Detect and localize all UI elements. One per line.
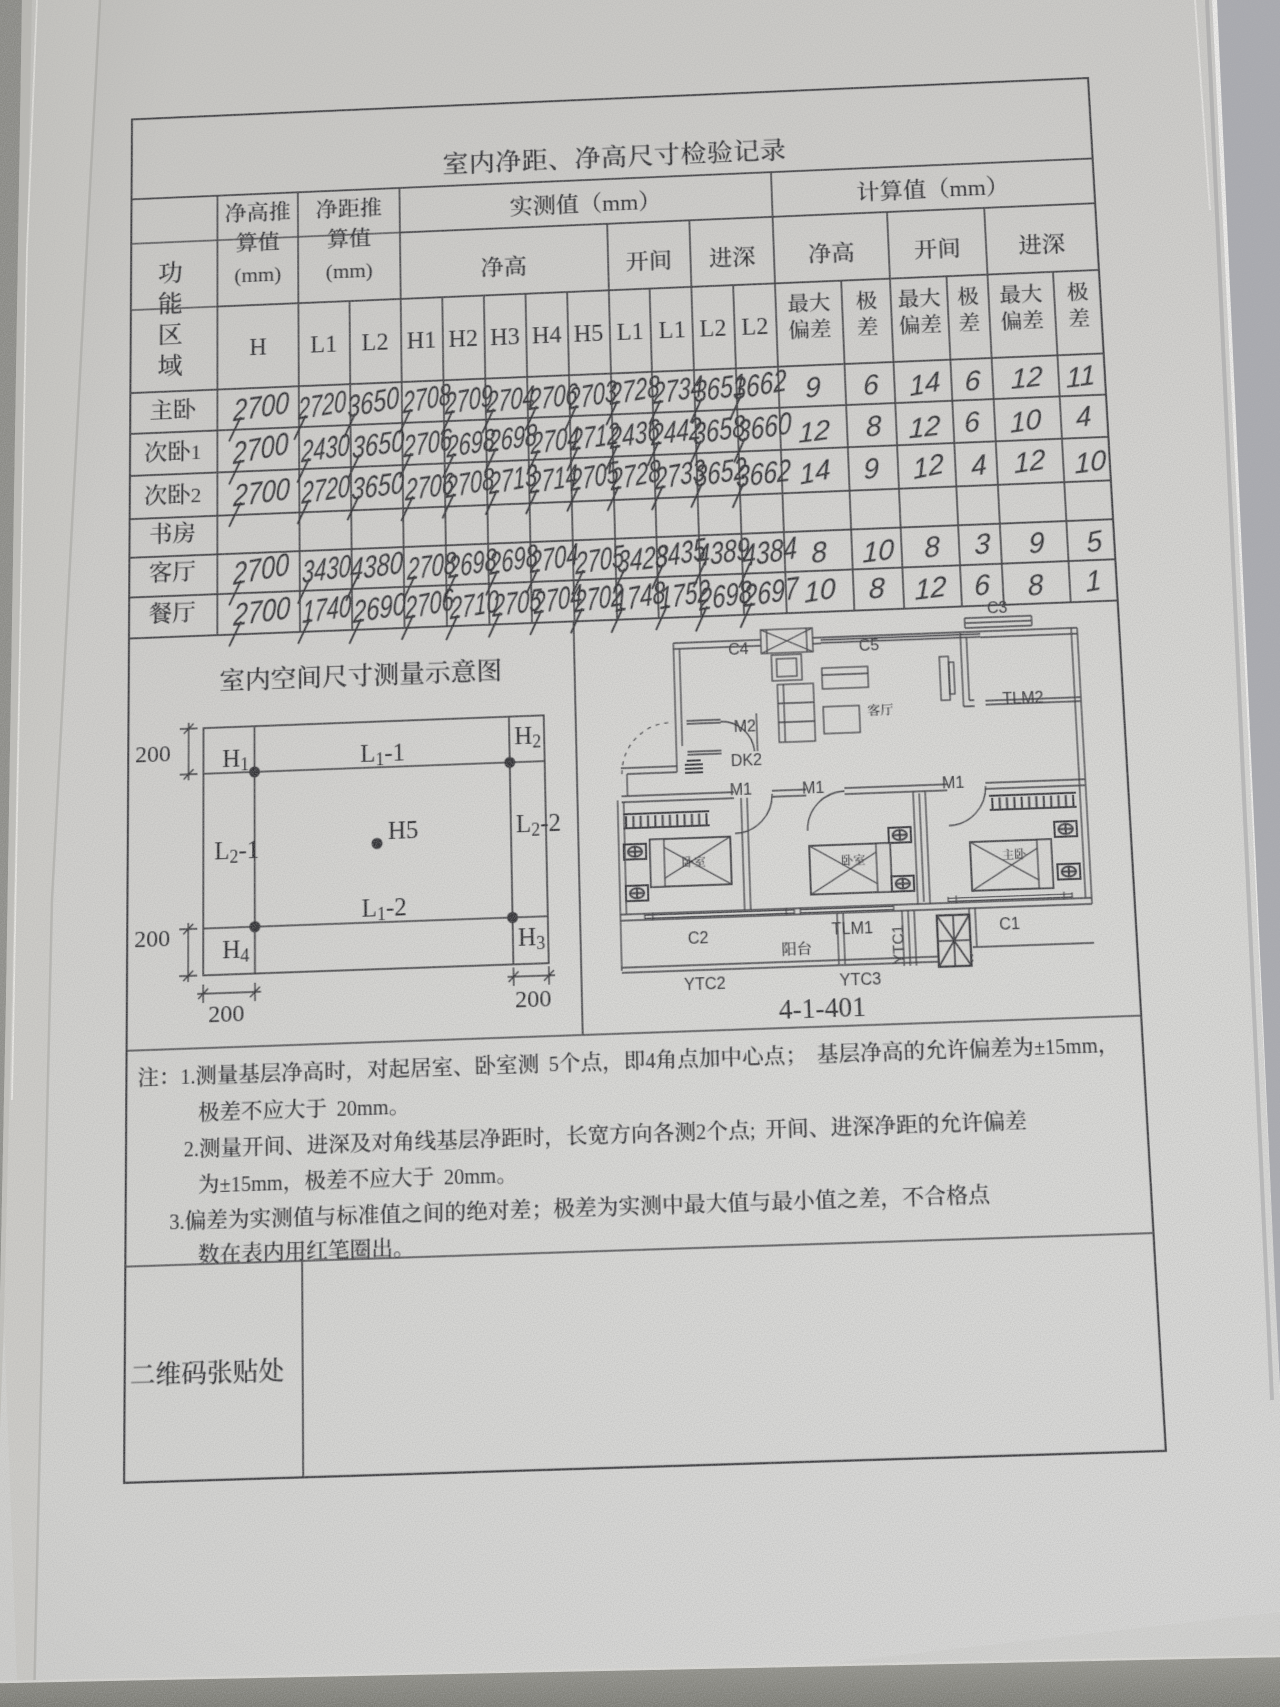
svg-text:YTC1: YTC1 bbox=[888, 924, 907, 964]
svg-text:L1-1: L1-1 bbox=[360, 739, 405, 770]
svg-text:DK2: DK2 bbox=[731, 752, 763, 770]
svg-text:8: 8 bbox=[810, 534, 828, 570]
svg-text:±15mm: ±15mm bbox=[219, 1171, 283, 1197]
svg-text:10: 10 bbox=[1010, 402, 1042, 439]
svg-text:12: 12 bbox=[911, 447, 945, 486]
svg-text:2: 2 bbox=[191, 484, 202, 507]
svg-text:H1: H1 bbox=[407, 327, 437, 355]
svg-text:12: 12 bbox=[908, 409, 940, 445]
svg-text:8: 8 bbox=[923, 529, 941, 565]
svg-text:5: 5 bbox=[1085, 523, 1104, 559]
svg-text:C2: C2 bbox=[688, 930, 709, 948]
svg-text:200: 200 bbox=[135, 740, 171, 768]
svg-text:200: 200 bbox=[515, 984, 552, 1013]
svg-text:C4: C4 bbox=[728, 641, 749, 659]
svg-text:4-1-401: 4-1-401 bbox=[778, 992, 866, 1025]
svg-text:H3: H3 bbox=[518, 923, 546, 954]
svg-text:6: 6 bbox=[974, 567, 992, 602]
svg-text:M1: M1 bbox=[802, 780, 825, 798]
svg-text:4380: 4380 bbox=[350, 546, 404, 588]
svg-text:10: 10 bbox=[862, 532, 894, 569]
svg-text:4: 4 bbox=[1075, 399, 1092, 434]
svg-text:(mm): (mm) bbox=[234, 263, 281, 287]
svg-text:L1-2: L1-2 bbox=[361, 893, 407, 925]
svg-text:1: 1 bbox=[191, 441, 202, 464]
svg-text:3650: 3650 bbox=[347, 381, 400, 425]
svg-text:;: ; bbox=[749, 1120, 755, 1144]
svg-text:TLM1: TLM1 bbox=[831, 920, 873, 939]
svg-text:200: 200 bbox=[134, 924, 170, 953]
svg-text:L1: L1 bbox=[617, 319, 645, 347]
svg-text:4: 4 bbox=[970, 447, 988, 482]
svg-text:3660: 3660 bbox=[737, 406, 792, 449]
svg-text:M2: M2 bbox=[733, 718, 756, 736]
svg-text:H2: H2 bbox=[448, 325, 478, 353]
svg-text:2.: 2. bbox=[184, 1138, 199, 1162]
svg-text:C5: C5 bbox=[858, 637, 879, 655]
svg-text:2700: 2700 bbox=[232, 386, 290, 428]
svg-text:L2-2: L2-2 bbox=[516, 809, 562, 841]
svg-text:200: 200 bbox=[208, 999, 244, 1028]
svg-text:9: 9 bbox=[863, 451, 880, 486]
svg-text:9: 9 bbox=[1028, 525, 1045, 560]
svg-text:2720: 2720 bbox=[297, 385, 346, 427]
svg-text:12: 12 bbox=[1013, 442, 1045, 479]
svg-text:C1: C1 bbox=[999, 916, 1021, 934]
svg-text:20mm: 20mm bbox=[444, 1164, 497, 1189]
svg-text:9: 9 bbox=[805, 370, 822, 405]
svg-text:mm: mm bbox=[949, 175, 986, 202]
svg-text:11: 11 bbox=[1066, 358, 1096, 394]
svg-text:H4: H4 bbox=[532, 322, 563, 350]
svg-text:8: 8 bbox=[865, 408, 882, 443]
svg-text:10: 10 bbox=[804, 571, 836, 609]
svg-text:2700: 2700 bbox=[232, 591, 291, 633]
svg-text:mm: mm bbox=[602, 189, 639, 216]
svg-text:L1: L1 bbox=[310, 331, 337, 359]
svg-text:L2: L2 bbox=[741, 313, 769, 341]
svg-text:4: 4 bbox=[645, 1050, 656, 1074]
svg-text:2430: 2430 bbox=[300, 428, 350, 470]
svg-text:8: 8 bbox=[869, 571, 885, 606]
svg-text:TLM2: TLM2 bbox=[1002, 690, 1044, 709]
svg-text:H5: H5 bbox=[573, 320, 603, 348]
svg-text:2690: 2690 bbox=[352, 587, 406, 631]
svg-text:YTC3: YTC3 bbox=[839, 971, 881, 990]
svg-text:2: 2 bbox=[696, 1121, 707, 1145]
svg-text:3: 3 bbox=[974, 526, 990, 561]
svg-text:12: 12 bbox=[798, 413, 830, 449]
svg-text:L1: L1 bbox=[658, 317, 686, 345]
svg-text:3662: 3662 bbox=[736, 453, 792, 494]
svg-text:H: H bbox=[249, 334, 267, 361]
svg-text:12: 12 bbox=[915, 569, 947, 606]
svg-text:3650: 3650 bbox=[351, 466, 405, 507]
svg-text:H4: H4 bbox=[222, 935, 250, 966]
svg-text:3430: 3430 bbox=[302, 549, 352, 591]
svg-text:8: 8 bbox=[1026, 567, 1044, 603]
svg-text:12: 12 bbox=[1011, 360, 1043, 395]
svg-text:±15mm: ±15mm bbox=[1033, 1035, 1099, 1061]
svg-text:1: 1 bbox=[1085, 563, 1103, 599]
svg-text:2720: 2720 bbox=[300, 469, 350, 511]
svg-text:14: 14 bbox=[798, 452, 831, 491]
svg-text:1.: 1. bbox=[180, 1066, 195, 1090]
svg-text:20mm: 20mm bbox=[337, 1096, 390, 1121]
svg-text:2700: 2700 bbox=[232, 472, 291, 514]
svg-text:6: 6 bbox=[862, 367, 880, 402]
svg-text:14: 14 bbox=[908, 365, 941, 403]
svg-text:H3: H3 bbox=[490, 324, 520, 352]
svg-text:(mm): (mm) bbox=[326, 260, 373, 284]
svg-text:6: 6 bbox=[965, 364, 982, 398]
svg-text:1740: 1740 bbox=[302, 589, 352, 631]
svg-text:M1: M1 bbox=[729, 782, 752, 800]
svg-text:H1: H1 bbox=[222, 745, 249, 776]
svg-text:3.: 3. bbox=[169, 1211, 184, 1235]
svg-text:C3: C3 bbox=[987, 600, 1008, 618]
svg-text:L2: L2 bbox=[361, 329, 388, 357]
svg-text:H2: H2 bbox=[514, 722, 542, 753]
svg-text:5: 5 bbox=[549, 1053, 560, 1077]
svg-text:H5: H5 bbox=[388, 816, 419, 845]
svg-text:4384: 4384 bbox=[742, 531, 797, 575]
svg-text:L2: L2 bbox=[699, 315, 727, 343]
svg-text:2700: 2700 bbox=[232, 427, 289, 472]
svg-text:YTC2: YTC2 bbox=[684, 975, 726, 994]
svg-text:2704: 2704 bbox=[485, 380, 535, 420]
svg-text:L2-1: L2-1 bbox=[214, 836, 259, 868]
svg-text:6: 6 bbox=[963, 404, 981, 439]
svg-text:10: 10 bbox=[1074, 443, 1106, 480]
svg-text:M1: M1 bbox=[942, 775, 965, 793]
svg-text:3650: 3650 bbox=[352, 424, 405, 466]
